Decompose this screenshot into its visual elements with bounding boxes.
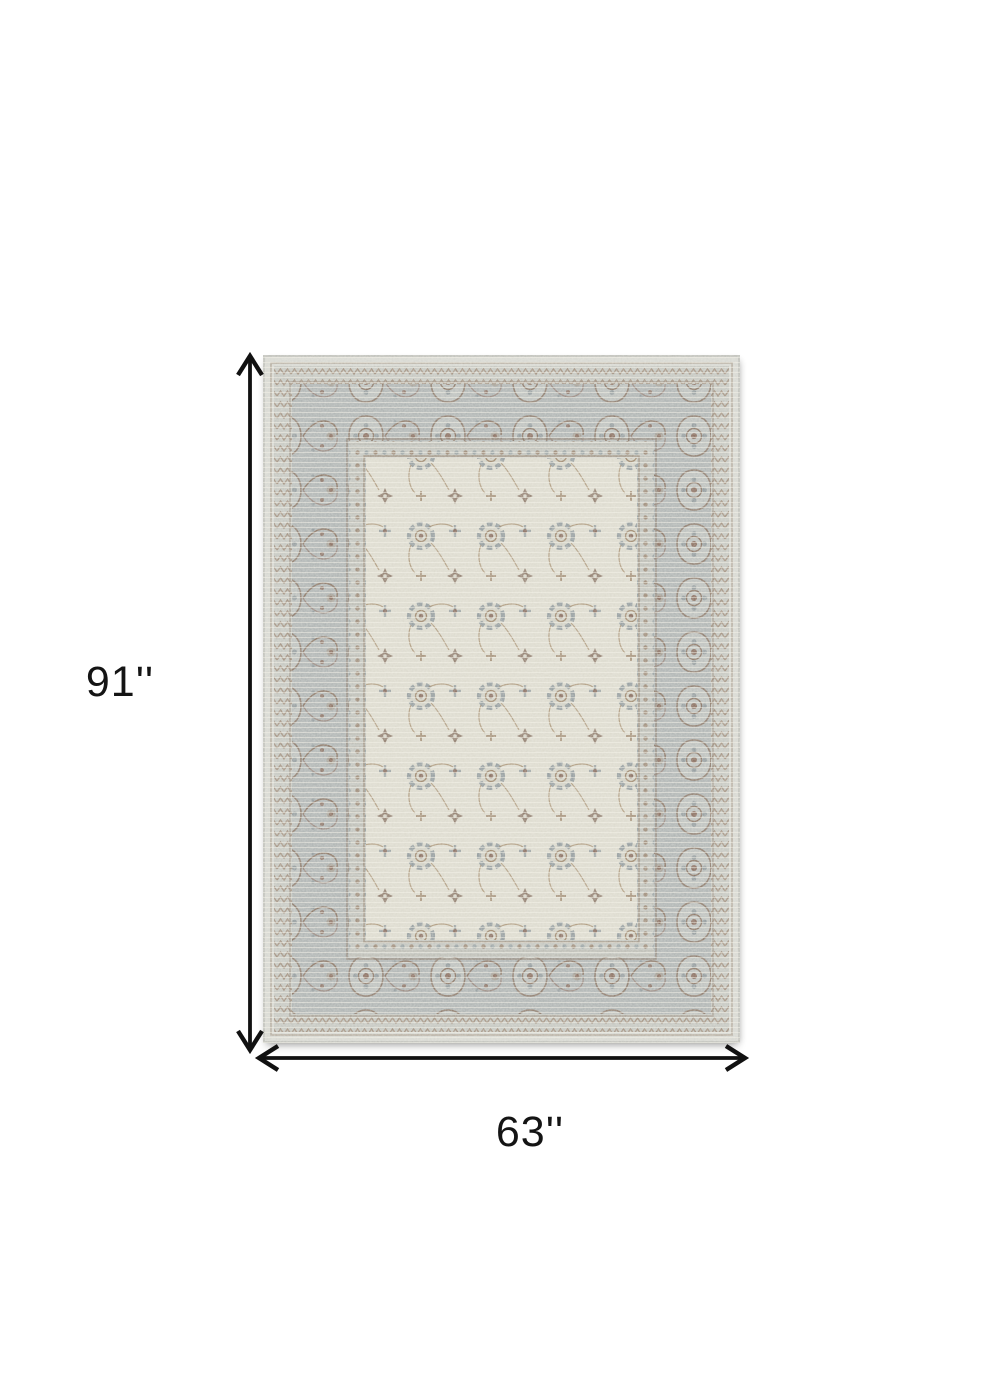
height-dimension-arrow [233,348,267,1058]
height-dimension-label: 91'' [45,659,195,706]
width-dimension-arrow [251,1041,753,1075]
rug-illustration [263,355,740,1043]
width-dimension-label: 63'' [455,1109,605,1156]
rug-product-image [263,355,740,1043]
product-dimension-image: 91'' 63'' [0,0,1000,1398]
